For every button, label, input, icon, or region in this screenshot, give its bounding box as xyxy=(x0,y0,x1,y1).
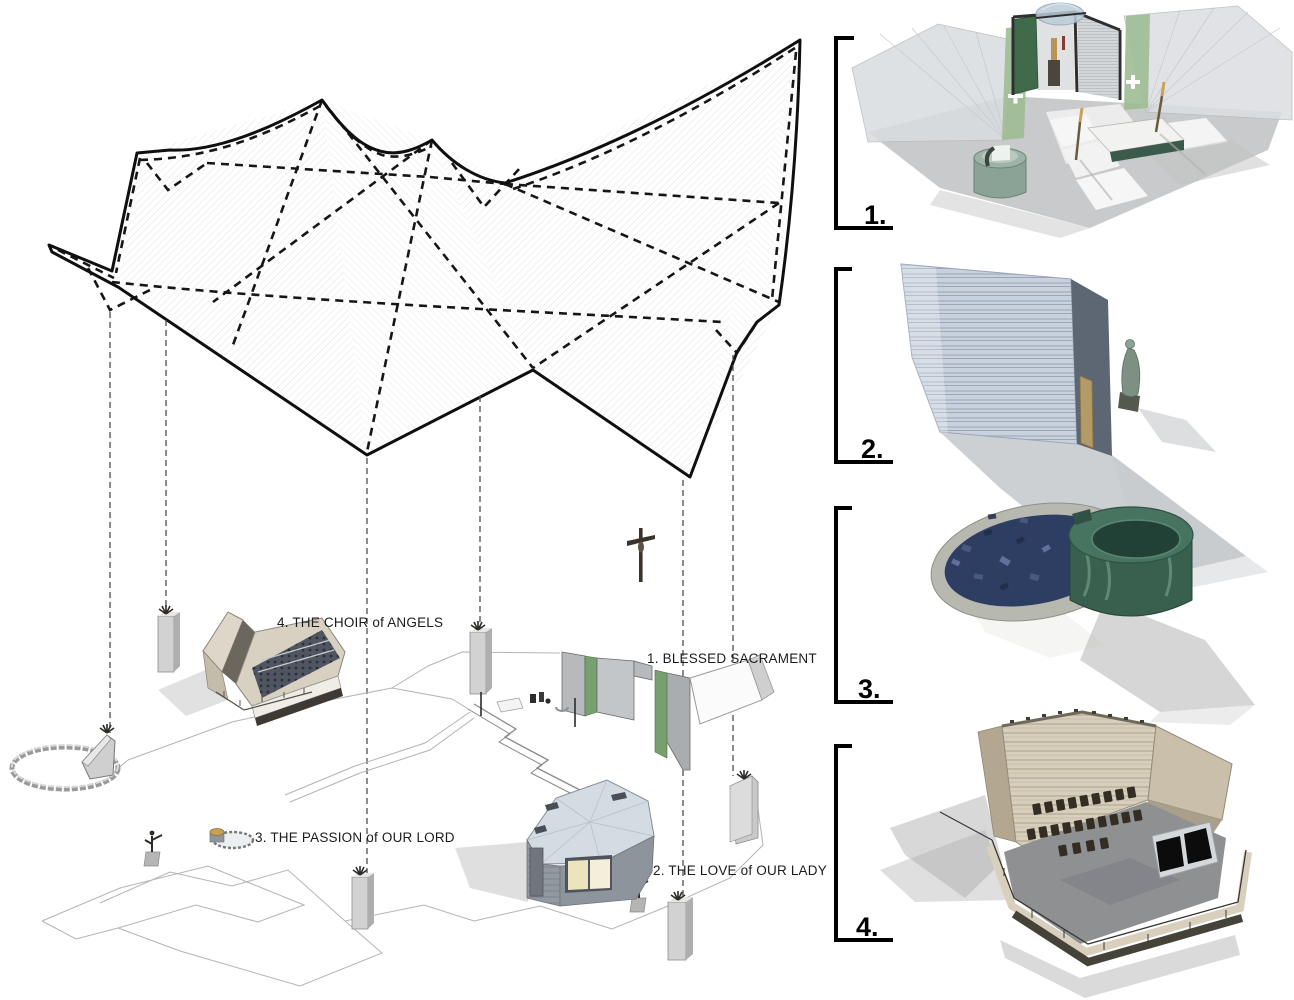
sacrament-walls xyxy=(481,652,774,770)
green-band-site-1 xyxy=(585,656,597,716)
font-vessel xyxy=(1069,507,1193,616)
presentation-board: 4. THE CHOIR of ANGELS 1. BLESSED SACRAM… xyxy=(0,0,1294,1000)
pillar-3 xyxy=(470,621,492,694)
detail-2-number: 2. xyxy=(861,434,884,464)
roof-canopy xyxy=(49,40,800,477)
pillar-5 xyxy=(668,891,693,960)
pillar-4 xyxy=(730,770,758,844)
green-band-render-right xyxy=(1124,14,1150,110)
label-blessed-sacrament: 1. BLESSED SACRAMENT xyxy=(647,651,817,666)
render-blessed-sacrament xyxy=(852,3,1292,238)
sanctuary-furniture xyxy=(481,692,575,727)
detail-4-number: 4. xyxy=(856,912,879,942)
composition-svg: 4. THE CHOIR of ANGELS 1. BLESSED SACRAM… xyxy=(0,0,1294,1000)
stations-ring xyxy=(12,724,118,789)
statue-1 xyxy=(144,831,162,866)
detail-1-number: 1. xyxy=(864,200,887,230)
processional-ramp xyxy=(468,704,580,795)
site-plan xyxy=(12,528,774,986)
mary-statue xyxy=(1118,340,1140,413)
lady-door xyxy=(530,848,543,896)
render-passion xyxy=(922,488,1255,725)
passion-pool-site xyxy=(210,829,253,849)
detail-1: 1. xyxy=(836,3,1292,238)
font-cylinder xyxy=(974,145,1026,198)
tabernacle xyxy=(1048,60,1060,86)
label-passion: 3. THE PASSION of OUR LORD xyxy=(255,830,455,845)
detail-4-bracket xyxy=(836,746,893,940)
detail-3-bracket xyxy=(836,508,893,702)
dark-green-slab xyxy=(1012,16,1038,94)
crucifix xyxy=(627,528,655,582)
lady-chapel xyxy=(455,780,654,906)
label-our-lady: 2. THE LOVE of OUR LADY xyxy=(653,863,827,878)
lady-box-door xyxy=(1080,376,1093,448)
wedge-figurine xyxy=(100,724,114,733)
label-choir: 4. THE CHOIR of ANGELS xyxy=(277,615,443,630)
pillar-1 xyxy=(158,605,180,672)
green-band-site-2 xyxy=(655,670,667,758)
detail-4: 4. xyxy=(836,709,1248,998)
glass-wall-left xyxy=(852,24,1012,142)
pillar-2 xyxy=(352,866,374,929)
detail-3-number: 3. xyxy=(858,674,881,704)
render-choir xyxy=(880,709,1248,998)
